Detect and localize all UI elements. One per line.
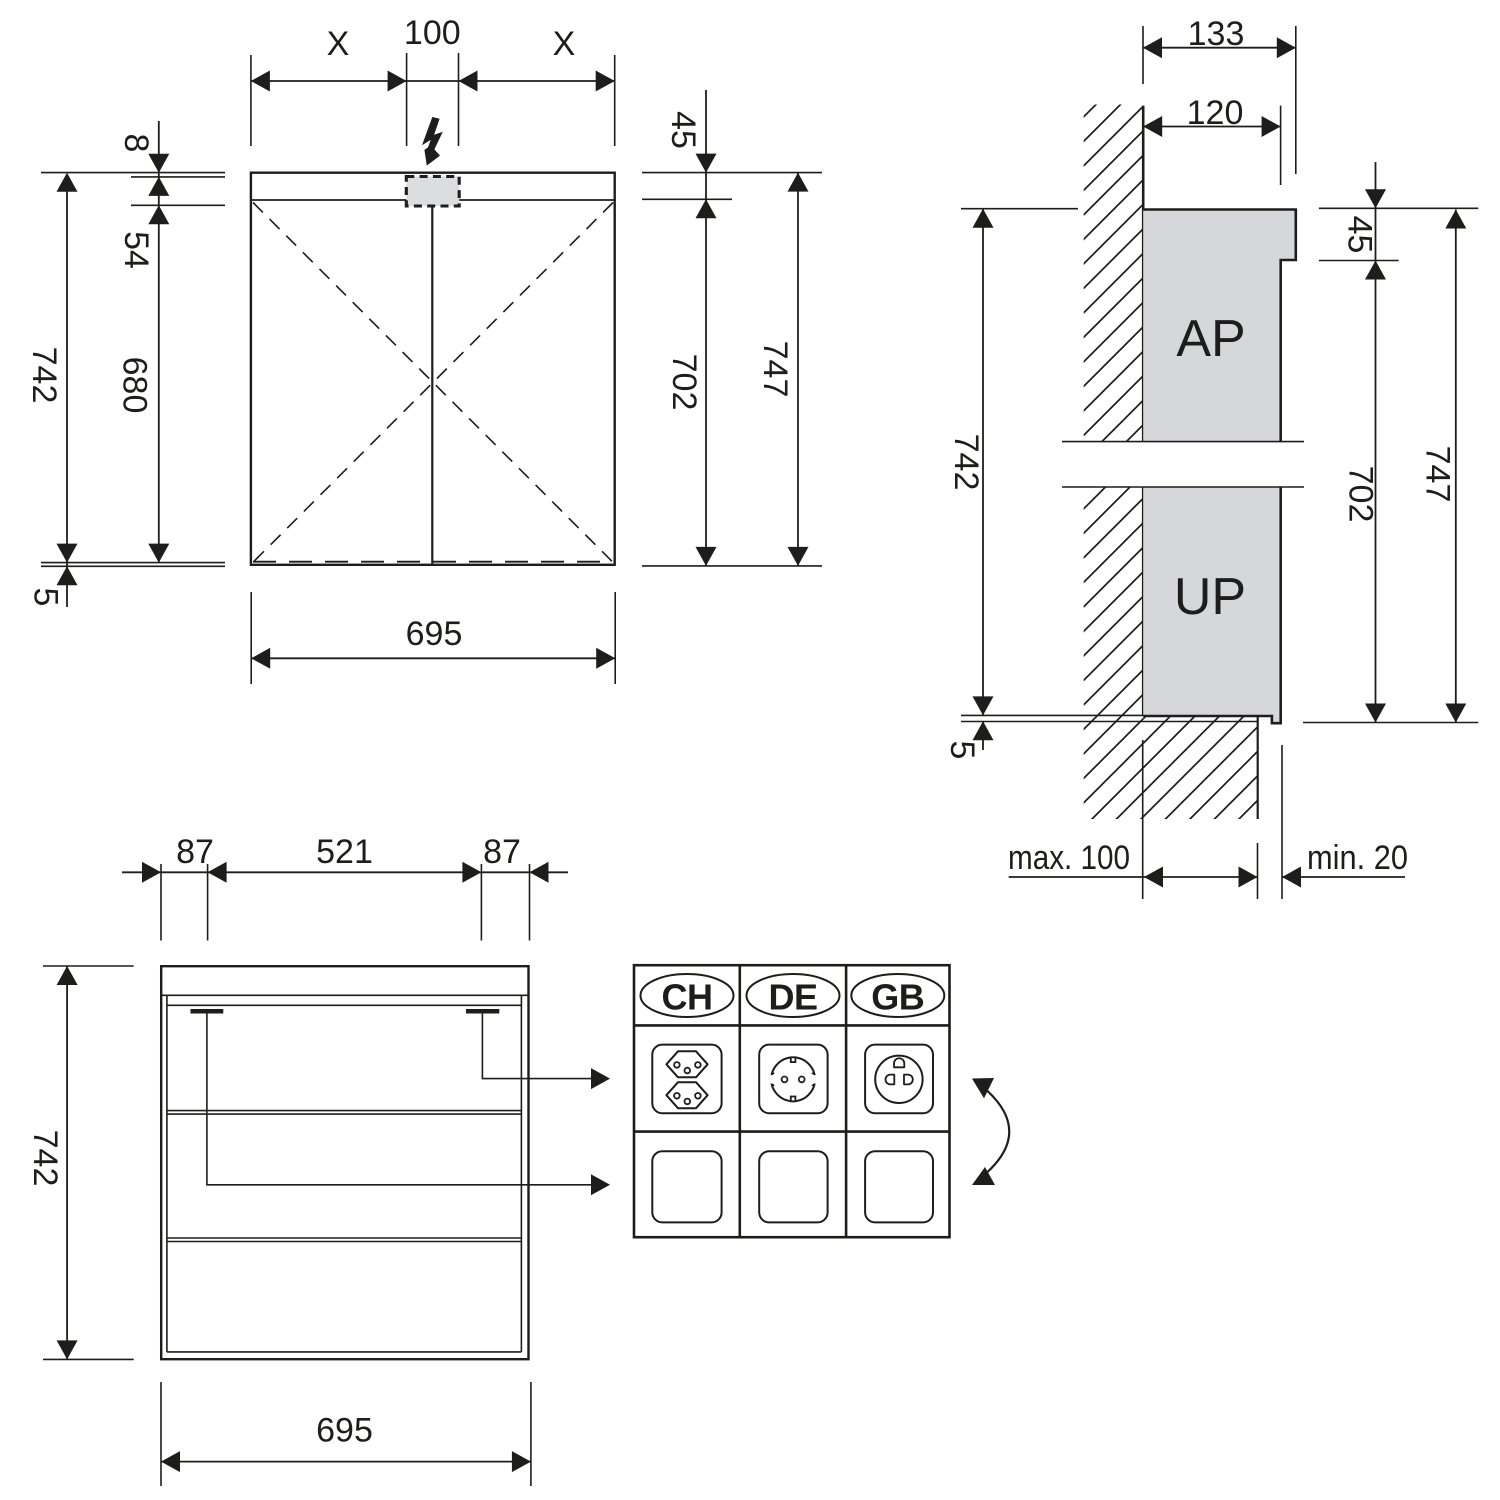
svg-text:min. 20: min. 20: [1307, 839, 1408, 877]
svg-text:702: 702: [1342, 466, 1380, 523]
svg-text:max. 100: max. 100: [1008, 839, 1130, 877]
svg-text:521: 521: [316, 833, 373, 871]
svg-text:742: 742: [26, 1130, 64, 1187]
svg-text:742: 742: [947, 434, 985, 491]
svg-text:AP: AP: [1176, 310, 1245, 368]
svg-text:DE: DE: [768, 977, 817, 1018]
svg-text:747: 747: [1419, 446, 1457, 503]
svg-text:X: X: [553, 25, 576, 63]
svg-text:UP: UP: [1174, 568, 1246, 626]
svg-text:GB: GB: [871, 977, 924, 1018]
svg-text:CH: CH: [662, 977, 713, 1018]
svg-text:45: 45: [664, 111, 702, 149]
svg-text:87: 87: [176, 833, 214, 871]
svg-text:45: 45: [1341, 216, 1379, 254]
svg-text:747: 747: [756, 341, 794, 398]
svg-text:8: 8: [117, 134, 155, 153]
svg-text:120: 120: [1187, 94, 1244, 132]
svg-text:5: 5: [943, 741, 981, 760]
svg-text:742: 742: [25, 347, 63, 404]
svg-text:87: 87: [483, 833, 521, 871]
svg-text:54: 54: [117, 231, 155, 269]
svg-text:100: 100: [404, 14, 461, 52]
svg-text:5: 5: [27, 588, 65, 607]
svg-text:702: 702: [665, 354, 703, 411]
svg-text:133: 133: [1188, 15, 1245, 53]
svg-text:695: 695: [406, 615, 463, 653]
svg-text:680: 680: [116, 357, 154, 414]
svg-text:695: 695: [316, 1412, 373, 1450]
svg-text:X: X: [327, 25, 350, 63]
